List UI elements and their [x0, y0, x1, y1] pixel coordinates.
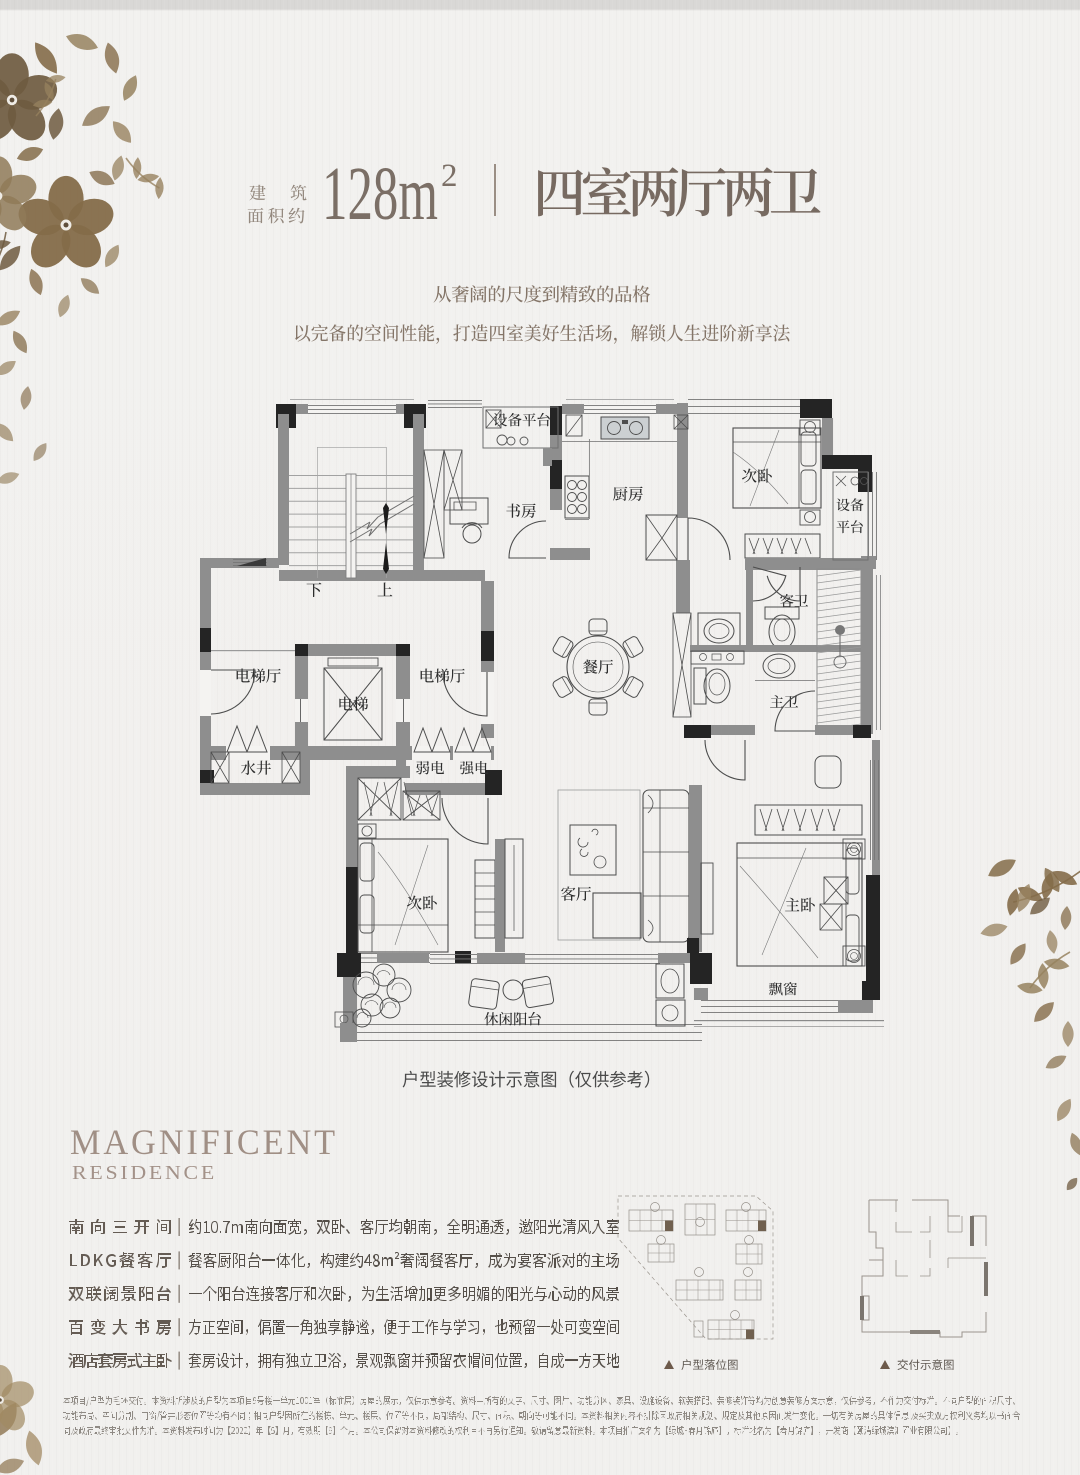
- svg-text:MAGNIFICENT: MAGNIFICENT: [70, 1122, 338, 1162]
- svg-text:RESIDENCE: RESIDENCE: [72, 1162, 217, 1184]
- svg-text:2: 2: [441, 158, 458, 194]
- svg-text:128m: 128m: [322, 152, 438, 236]
